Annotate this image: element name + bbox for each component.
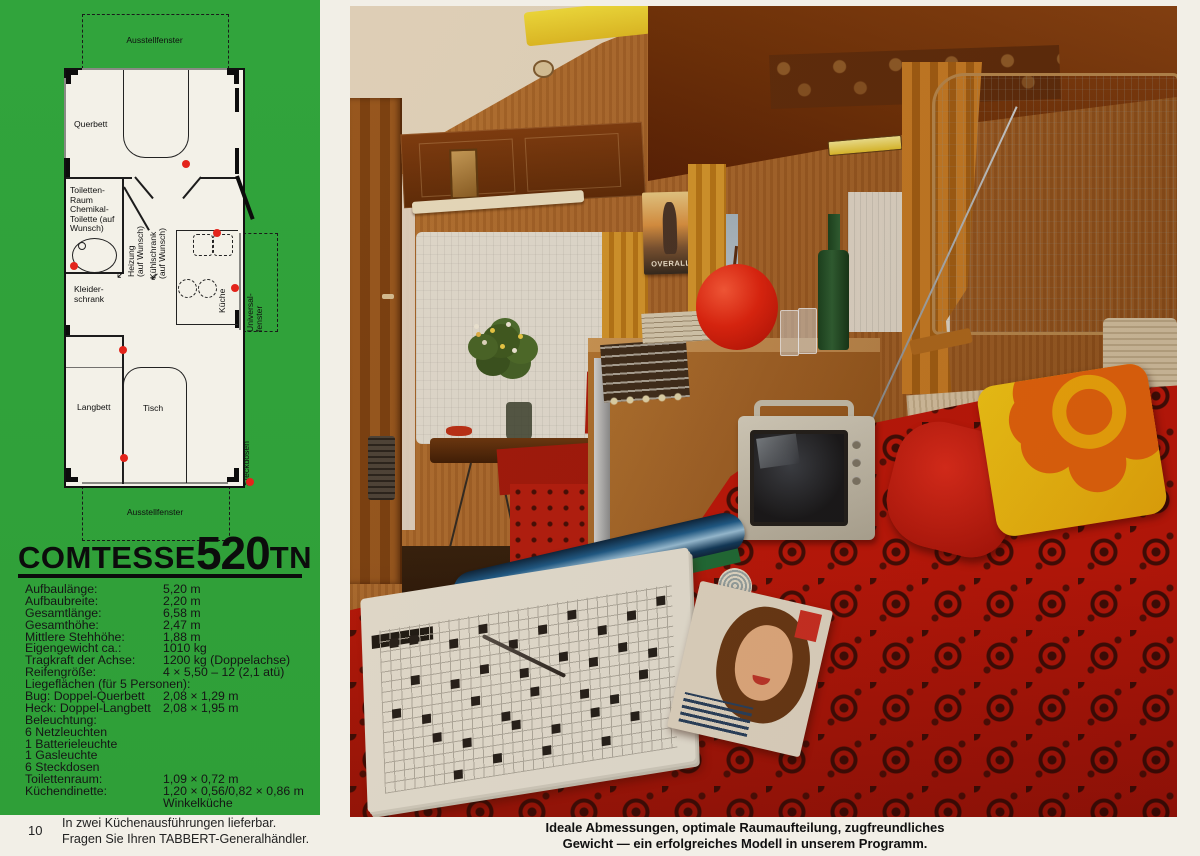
flower-bouquet [468, 334, 498, 360]
tv-knob [852, 476, 861, 485]
plan-wall-tick [227, 477, 239, 482]
model-title: COMTESSE520TN [18, 536, 312, 578]
page-number: 10 [28, 823, 42, 838]
wall-mirror [449, 149, 479, 200]
tv-knob [852, 440, 861, 449]
caption-line1: Ideale Abmessungen, optimale Raumaufteil… [350, 820, 1140, 836]
plan-wall-tick [66, 477, 78, 482]
plan-outlet-dot [213, 229, 221, 237]
footer-line1: In zwei Küchenausführungen lieferbar. [62, 816, 309, 832]
green-bottle [818, 250, 849, 350]
plan-label-kleiderschrank: Kleider- schrank [74, 285, 104, 304]
plan-tisch-shape [123, 367, 187, 483]
plan-arrow: ↙ [116, 268, 125, 281]
plan-wall-tick [66, 70, 71, 84]
footer-note: In zwei Küchenausführungen lieferbar. Fr… [62, 816, 309, 847]
plan-outlet-dot [246, 478, 254, 486]
drinking-glass [780, 310, 799, 356]
plan-outlet-dot [182, 160, 190, 168]
yellow-flower-pillow [975, 361, 1169, 538]
footer-line2: Fragen Sie Ihren TABBERT-Generalhändler. [62, 832, 309, 848]
spec-rows: Aufbaulänge:5,20 mAufbaubreite:2,20 mGes… [25, 584, 317, 810]
photo-caption: Ideale Abmessungen, optimale Raumaufteil… [350, 820, 1140, 851]
plan-label-kueche: Küche [218, 289, 227, 313]
plan-wall [66, 335, 124, 337]
plan-sink [193, 234, 213, 256]
plan-arrow: ↙ [150, 270, 159, 283]
ceiling-lamp [533, 60, 554, 78]
plan-outlet-dot [231, 284, 239, 292]
plan-wall-tick [235, 88, 239, 112]
plan-querbett-shape [123, 70, 189, 158]
plan-door-line [182, 176, 202, 199]
plan-label-window-bottom: Ausstellfenster [82, 508, 228, 518]
plan-door-line [134, 176, 154, 199]
plan-entry-door [235, 175, 254, 220]
plan-wall [66, 367, 124, 368]
brochure-page: Ausstellfenster Ausstellfenster [0, 0, 1200, 856]
door-handle [382, 294, 394, 299]
plan-burner [198, 279, 217, 298]
spec-label: Küchendinette: [25, 786, 163, 798]
magazine-logo [794, 610, 822, 642]
tv-screen-glare [756, 433, 800, 468]
plan-wall-tick [234, 70, 239, 84]
plan-sink [213, 234, 233, 256]
plan-window-gap-left [64, 78, 66, 158]
crossword-grid [379, 584, 677, 793]
plan-label-universalfenster: Universal- fenster [246, 293, 264, 332]
plan-outlet-dot [120, 454, 128, 462]
bouquet-blossoms [474, 324, 479, 329]
plan-label-tisch: Tisch [143, 404, 163, 414]
spec-value: 2,08 × 1,95 m [163, 703, 239, 715]
plan-outlet-dot [70, 262, 78, 270]
plan-wall [200, 177, 239, 179]
green-panel: Ausstellfenster Ausstellfenster [0, 0, 320, 815]
plan-label-toilette: Toiletten- Raum Chemikal- Toilette (auf … [70, 186, 128, 234]
drinking-glass [798, 308, 817, 354]
tv-knob [852, 458, 861, 467]
plan-label-heizung: Heizung (auf Wunsch) [127, 226, 145, 277]
poster-figure [662, 202, 677, 254]
plan-window-gap-right [239, 233, 241, 330]
plan-label-window-top: Ausstellfenster [82, 36, 227, 46]
red-apple-box [696, 264, 778, 350]
plan-burner [178, 279, 197, 298]
plan-wall-tick [66, 158, 70, 178]
spec-value: Winkelküche [163, 798, 233, 810]
caption-line2: Gewicht — ein erfolgreiches Modell in un… [350, 836, 1140, 852]
cabinet-door [525, 133, 622, 192]
plan-label-langbett: Langbett [77, 403, 110, 413]
spec-label [25, 798, 163, 810]
plan-tub-drain [78, 242, 86, 250]
model-suffix: TN [270, 545, 312, 570]
plan-wall-tick [235, 148, 239, 174]
plan-outlet-dot [119, 346, 127, 354]
interior-photo: OVERALL [350, 6, 1177, 817]
model-number: 520 [196, 536, 270, 570]
plan-label-querbett: Querbett [74, 120, 107, 130]
spec-row: Winkelküche [25, 798, 317, 810]
model-brand: COMTESSE [18, 545, 196, 570]
flower-motif [1063, 386, 1116, 439]
crossword-black-cells [390, 638, 399, 648]
